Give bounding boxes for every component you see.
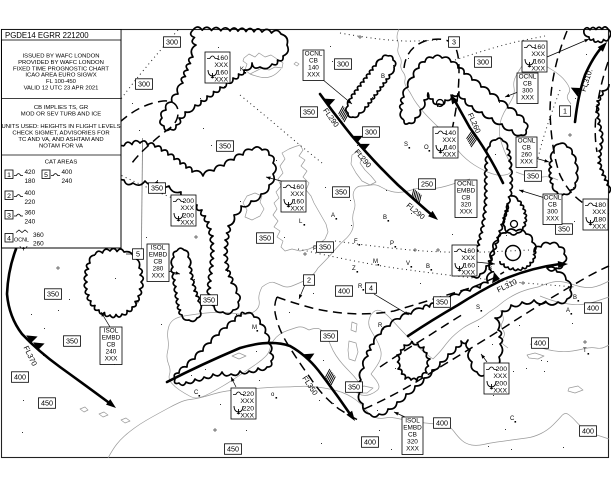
svg-text:XXX: XXX	[214, 77, 228, 84]
svg-text:400: 400	[587, 304, 599, 313]
svg-text:450: 450	[227, 445, 239, 454]
svg-text:EMBD: EMBD	[102, 335, 121, 342]
svg-text:TC AND VA, AND ASHTAM AND: TC AND VA, AND ASHTAM AND	[18, 137, 103, 143]
svg-text:260: 260	[33, 241, 44, 248]
svg-text:MOD OR SEV TURB AND ICE: MOD OR SEV TURB AND ICE	[21, 112, 101, 118]
svg-text:300: 300	[547, 209, 558, 216]
svg-text:XXX: XXX	[546, 216, 560, 223]
svg-text:OCNL: OCNL	[305, 51, 323, 58]
svg-text:400: 400	[338, 287, 350, 296]
svg-text:ICAO AREA EURO SIGWX: ICAO AREA EURO SIGWX	[25, 73, 96, 79]
svg-text:2: 2	[307, 276, 311, 285]
svg-text:ISOL: ISOL	[151, 245, 166, 252]
svg-text:XXX: XXX	[214, 62, 228, 69]
svg-text:4: 4	[7, 235, 11, 242]
svg-text:NOTAM FOR VA: NOTAM FOR VA	[39, 144, 83, 150]
svg-text:R: R	[358, 284, 363, 290]
svg-text:XXX: XXX	[460, 209, 474, 216]
svg-text:XXX: XXX	[290, 191, 304, 198]
svg-text:CHECK SIGMET, ADVISORIES FOR: CHECK SIGMET, ADVISORIES FOR	[12, 131, 109, 137]
svg-text:ISSUED BY WAFC LONDON: ISSUED BY WAFC LONDON	[23, 54, 100, 60]
svg-text:5: 5	[44, 172, 48, 179]
svg-text:360: 360	[25, 210, 36, 217]
svg-text:OCNL: OCNL	[544, 195, 562, 202]
svg-text:XXX: XXX	[442, 137, 456, 144]
svg-text:300: 300	[522, 88, 533, 95]
svg-text:XXX: XXX	[592, 224, 606, 231]
svg-text:300: 300	[166, 38, 178, 47]
svg-text:350: 350	[203, 296, 215, 305]
svg-text:160: 160	[293, 184, 305, 191]
svg-text:XXX: XXX	[493, 373, 507, 380]
svg-text:140: 140	[445, 130, 457, 137]
svg-text:CB: CB	[408, 432, 417, 439]
svg-text:3: 3	[452, 38, 456, 47]
svg-text:240: 240	[25, 219, 36, 226]
svg-text:ISOL: ISOL	[405, 418, 420, 425]
svg-text:220: 220	[25, 199, 36, 206]
svg-text:400: 400	[364, 438, 376, 447]
svg-text:P: P	[390, 241, 394, 247]
svg-text:CAT AREAS: CAT AREAS	[45, 160, 78, 166]
svg-text:240: 240	[62, 178, 73, 185]
svg-text:XXX: XXX	[240, 413, 254, 420]
svg-text:B: B	[381, 74, 385, 80]
svg-text:1: 1	[7, 172, 11, 179]
svg-text:400: 400	[436, 419, 448, 428]
svg-text:160: 160	[534, 59, 546, 66]
svg-text:350: 350	[259, 234, 271, 243]
svg-text:XXX: XXX	[520, 159, 534, 166]
svg-text:350: 350	[335, 188, 347, 197]
svg-text:300: 300	[365, 128, 377, 137]
svg-text:CB: CB	[462, 195, 471, 202]
svg-text:XXX: XXX	[493, 388, 507, 395]
svg-text:300: 300	[337, 60, 349, 69]
svg-text:OCNL: OCNL	[519, 74, 537, 81]
svg-text:XXX: XXX	[240, 398, 254, 405]
svg-text:C: C	[194, 390, 199, 396]
svg-text:CB: CB	[522, 145, 531, 152]
svg-text:EMBD: EMBD	[403, 425, 422, 432]
svg-text:350: 350	[219, 142, 231, 151]
svg-text:5: 5	[136, 250, 140, 259]
svg-text:XXX: XXX	[307, 72, 321, 79]
svg-text:B: B	[383, 215, 387, 221]
svg-text:320: 320	[407, 439, 418, 446]
svg-text:180: 180	[25, 178, 36, 185]
svg-text:M: M	[373, 259, 378, 265]
svg-text:S: S	[404, 142, 408, 148]
svg-text:F: F	[354, 239, 358, 245]
svg-text:280: 280	[153, 266, 164, 273]
svg-text:XXX: XXX	[592, 209, 606, 216]
svg-text:C: C	[510, 416, 515, 422]
svg-text:400: 400	[534, 339, 546, 348]
svg-text:350: 350	[527, 172, 539, 181]
svg-text:A: A	[566, 308, 570, 314]
svg-text:320: 320	[461, 202, 472, 209]
svg-text:XXX: XXX	[531, 51, 545, 58]
svg-text:XXX: XXX	[180, 220, 194, 227]
svg-text:250: 250	[421, 180, 433, 189]
svg-text:XXX: XXX	[180, 205, 194, 212]
svg-text:350: 350	[47, 290, 59, 299]
svg-text:ISOL: ISOL	[104, 328, 119, 335]
svg-text:200: 200	[183, 213, 195, 220]
svg-text:160: 160	[464, 248, 476, 255]
svg-text:1: 1	[563, 107, 567, 116]
svg-text:OCNL: OCNL	[457, 181, 475, 188]
svg-text:350: 350	[303, 108, 315, 117]
svg-text:260: 260	[521, 152, 532, 159]
svg-text:XXX: XXX	[461, 270, 475, 277]
svg-text:360: 360	[33, 232, 44, 239]
svg-text:350: 350	[348, 383, 360, 392]
svg-text:400: 400	[14, 373, 26, 382]
svg-text:240: 240	[106, 349, 117, 356]
svg-text:420: 420	[25, 169, 36, 176]
svg-text:XXX: XXX	[290, 206, 304, 213]
svg-text:180: 180	[595, 217, 607, 224]
svg-text:350: 350	[151, 184, 163, 193]
svg-text:220: 220	[243, 391, 255, 398]
svg-text:XXX: XXX	[461, 255, 475, 262]
svg-text:160: 160	[464, 263, 476, 270]
svg-text:200: 200	[183, 198, 195, 205]
svg-text:M: M	[252, 325, 257, 331]
svg-text:350: 350	[323, 332, 335, 341]
svg-text:PROVIDED BY WAFC LONDON: PROVIDED BY WAFC LONDON	[18, 60, 104, 66]
svg-text:2: 2	[7, 193, 11, 200]
svg-text:CB: CB	[107, 342, 116, 349]
svg-text:400: 400	[62, 169, 73, 176]
svg-text:XXX: XXX	[442, 152, 456, 159]
svg-text:XXX: XXX	[521, 95, 535, 102]
svg-text:200: 200	[496, 381, 508, 388]
svg-text:S: S	[476, 305, 480, 311]
svg-text:140: 140	[445, 145, 457, 152]
svg-text:160: 160	[217, 55, 229, 62]
svg-text:350: 350	[66, 337, 78, 346]
svg-text:XXX: XXX	[406, 446, 420, 453]
svg-text:350: 350	[319, 243, 331, 252]
svg-text:EMBD: EMBD	[149, 252, 168, 259]
svg-text:220: 220	[243, 406, 255, 413]
svg-text:180: 180	[595, 202, 607, 209]
svg-text:EMBD: EMBD	[457, 188, 476, 195]
svg-text:450: 450	[41, 399, 53, 408]
svg-text:160: 160	[293, 199, 305, 206]
svg-text:300: 300	[477, 58, 489, 67]
svg-text:FL 100-450: FL 100-450	[46, 79, 77, 85]
svg-text:VALID 12 UTC 23 APR 2021: VALID 12 UTC 23 APR 2021	[24, 86, 99, 92]
svg-text:200: 200	[496, 366, 508, 373]
svg-text:160: 160	[534, 44, 546, 51]
svg-text:XXX: XXX	[152, 273, 166, 280]
svg-text:3: 3	[7, 212, 11, 219]
svg-text:400: 400	[582, 427, 594, 436]
svg-text:UNITS USED: HEIGHTS IN FLIGHT: UNITS USED: HEIGHTS IN FLIGHT LEVELS	[1, 124, 120, 130]
svg-text:FIXED TIME PROGNOSTIC CHART: FIXED TIME PROGNOSTIC CHART	[13, 66, 109, 72]
svg-text:300: 300	[138, 80, 150, 89]
svg-text:CB: CB	[548, 202, 557, 209]
svg-text:Z: Z	[352, 266, 356, 272]
svg-text:O: O	[424, 145, 429, 151]
svg-text:160: 160	[217, 70, 229, 77]
svg-text:PGDE14 EGRR 221200: PGDE14 EGRR 221200	[5, 31, 89, 40]
svg-text:CB IMPLIES TS, GR: CB IMPLIES TS, GR	[34, 105, 88, 111]
svg-text:B: B	[573, 295, 577, 301]
svg-text:CB: CB	[154, 259, 163, 266]
svg-text:4: 4	[369, 284, 373, 293]
svg-text:T: T	[583, 348, 587, 354]
svg-text:B: B	[426, 264, 430, 270]
svg-text:140: 140	[308, 65, 319, 72]
svg-text:350: 350	[436, 298, 448, 307]
svg-text:V: V	[406, 261, 410, 267]
svg-text:OCNL: OCNL	[518, 138, 536, 145]
svg-text:XXX: XXX	[531, 66, 545, 73]
svg-text:XXX: XXX	[105, 356, 119, 363]
svg-text:400: 400	[25, 190, 36, 197]
svg-text:OCNL: OCNL	[14, 238, 29, 244]
svg-text:CB: CB	[523, 81, 532, 88]
svg-text:350: 350	[558, 225, 570, 234]
svg-text:A: A	[331, 213, 335, 219]
svg-text:CB: CB	[309, 58, 318, 65]
